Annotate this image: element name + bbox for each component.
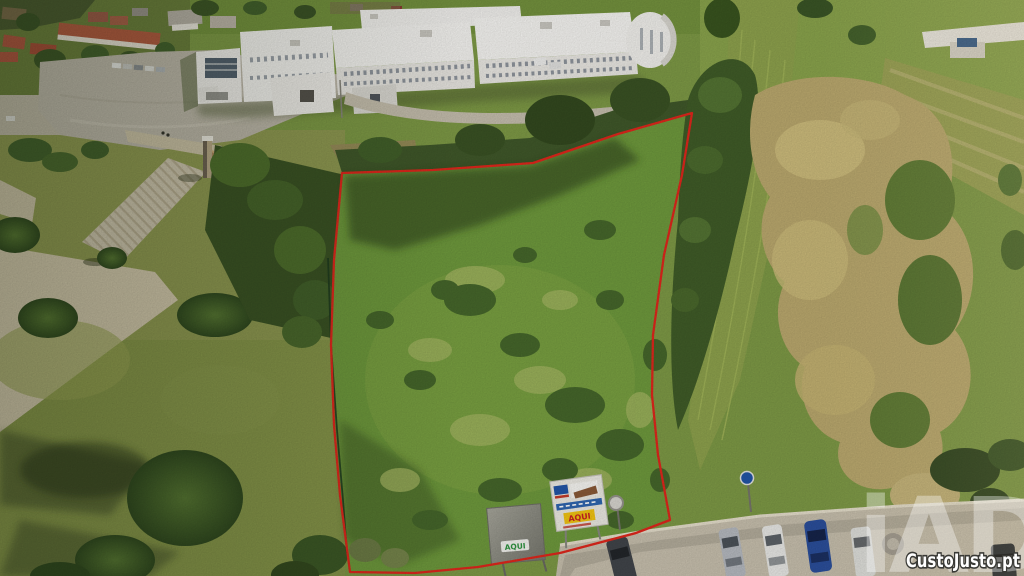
custojusto-logo: CustoJusto.pt [906, 550, 1020, 572]
aerial-photo: AQUI AQUI iAD CustoJusto.pt [0, 0, 1024, 576]
